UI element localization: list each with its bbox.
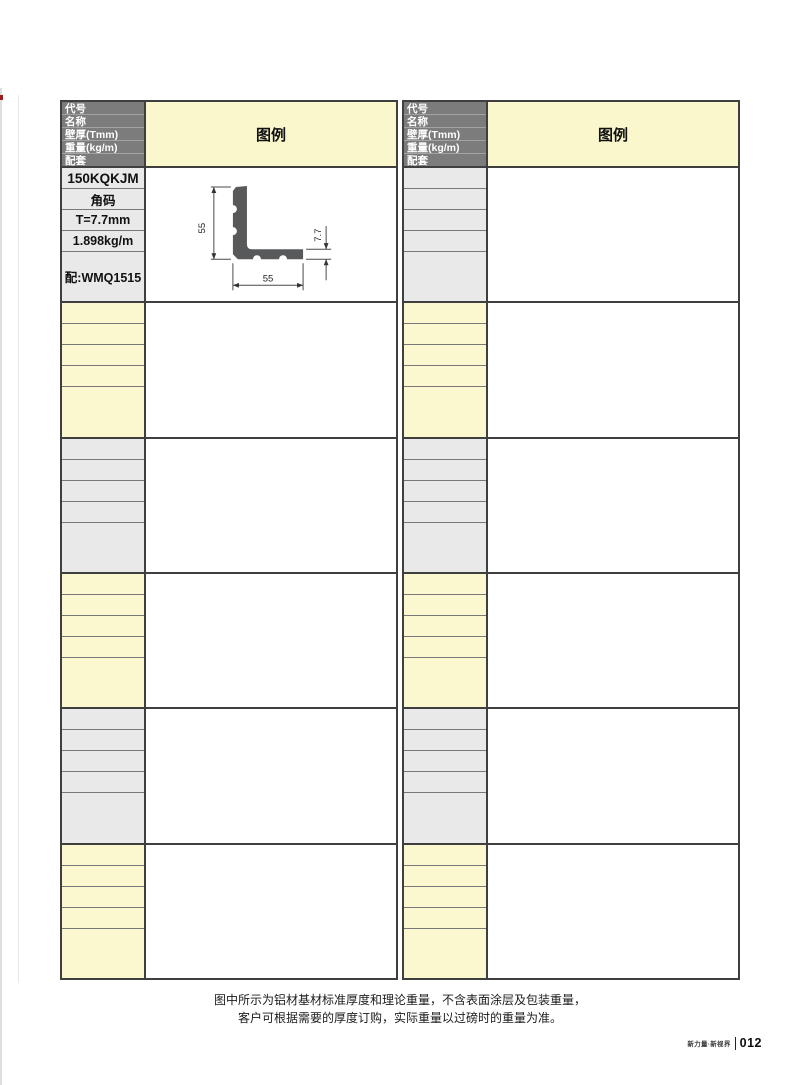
thickness-cell (62, 887, 144, 908)
spec-label-column (404, 439, 488, 572)
weight-cell (62, 772, 144, 793)
match-cell (404, 793, 486, 842)
weight-cell (404, 772, 486, 793)
code-cell (62, 303, 144, 324)
spec-block (62, 303, 396, 438)
spec-label-column (62, 845, 146, 978)
match-cell (62, 523, 144, 572)
spec-block (404, 845, 738, 978)
spec-block (404, 303, 738, 438)
spec-block (404, 574, 738, 709)
legend-cell (146, 303, 396, 436)
l-profile-shape (233, 186, 303, 259)
legend-cell (146, 574, 396, 707)
thickness-cell (404, 887, 486, 908)
name-cell (62, 595, 144, 616)
header-name-label: 名称 (404, 115, 486, 128)
spec-label-column (404, 168, 488, 301)
thickness-cell (404, 751, 486, 772)
match-cell (404, 387, 486, 436)
header-match-label: 配套 (62, 154, 144, 166)
spec-block (404, 709, 738, 844)
spec-label-column (62, 303, 146, 436)
spec-label-column (404, 303, 488, 436)
weight-cell: 1.898kg/m (62, 231, 144, 252)
legend-cell (488, 439, 738, 572)
spec-block (404, 168, 738, 303)
weight-cell (404, 502, 486, 523)
name-cell: 角码 (62, 189, 144, 210)
spec-label-column (62, 574, 146, 707)
spec-block (62, 574, 396, 709)
weight-cell (62, 908, 144, 929)
match-cell (404, 658, 486, 707)
thickness-cell (404, 345, 486, 366)
header-label-column: 代号 名称 壁厚(Tmm) 重量(kg/m) 配套 (404, 102, 488, 166)
thickness-cell (62, 616, 144, 637)
catalog-page: 代号 名称 壁厚(Tmm) 重量(kg/m) 配套 图例 150KQKJM 角码… (0, 0, 800, 1085)
scan-edge-artifact (0, 88, 2, 1085)
thickness-cell (62, 481, 144, 502)
left-spec-table: 代号 名称 壁厚(Tmm) 重量(kg/m) 配套 图例 150KQKJM 角码… (60, 100, 398, 980)
thickness-cell (404, 481, 486, 502)
spec-block (62, 439, 396, 574)
legend-cell (488, 574, 738, 707)
thickness-cell (404, 210, 486, 231)
code-cell (404, 709, 486, 730)
weight-cell (404, 637, 486, 658)
footer-note: 图中所示为铝材基材标准厚度和理论重量，不含表面涂层及包装重量， 客户可根据需要的… (0, 991, 800, 1027)
name-cell (404, 730, 486, 751)
name-cell (404, 866, 486, 887)
name-cell (404, 324, 486, 345)
match-cell (404, 252, 486, 301)
match-cell (62, 929, 144, 978)
code-cell (62, 845, 144, 866)
page-mark: 新力量·新视界 012 (687, 1036, 762, 1050)
table-header: 代号 名称 壁厚(Tmm) 重量(kg/m) 配套 图例 (62, 102, 396, 168)
spec-label-column (62, 709, 146, 842)
match-cell (62, 387, 144, 436)
spec-block (62, 709, 396, 844)
header-label-column: 代号 名称 壁厚(Tmm) 重量(kg/m) 配套 (62, 102, 146, 166)
match-cell (404, 523, 486, 572)
legend-cell (146, 845, 396, 978)
header-code-label: 代号 (62, 102, 144, 115)
name-cell (404, 189, 486, 210)
dim-width-label: 55 (263, 273, 274, 284)
name-cell (62, 324, 144, 345)
name-cell (62, 460, 144, 481)
weight-cell (404, 366, 486, 387)
code-cell (404, 845, 486, 866)
spec-block (404, 439, 738, 574)
code-cell (404, 439, 486, 460)
spec-label-column (404, 709, 488, 842)
right-spec-table: 代号 名称 壁厚(Tmm) 重量(kg/m) 配套 图例 (402, 100, 740, 980)
header-thickness-label: 壁厚(Tmm) (404, 128, 486, 141)
weight-cell (404, 231, 486, 252)
header-name-label: 名称 (62, 115, 144, 128)
spec-label-column: 150KQKJM 角码 T=7.7mm 1.898kg/m 配:WMQ1515 (62, 168, 146, 301)
spec-label-column (404, 845, 488, 978)
footer-note-line2: 客户可根据需要的厚度订购，实际重量以过磅时的重量为准。 (0, 1009, 800, 1027)
match-cell (62, 793, 144, 842)
thickness-cell (404, 616, 486, 637)
weight-cell (62, 366, 144, 387)
header-weight-label: 重量(kg/m) (404, 141, 486, 154)
angle-profile-drawing: 55 55 7.7 (146, 168, 396, 301)
legend-cell (488, 303, 738, 436)
spec-label-column (404, 574, 488, 707)
thickness-cell: T=7.7mm (62, 210, 144, 231)
page-mark-divider (735, 1037, 736, 1050)
weight-cell (62, 637, 144, 658)
legend-cell (488, 845, 738, 978)
code-cell (404, 168, 486, 189)
name-cell (404, 460, 486, 481)
header-code-label: 代号 (404, 102, 486, 115)
spec-block (62, 845, 396, 978)
spec-block: 150KQKJM 角码 T=7.7mm 1.898kg/m 配:WMQ1515 … (62, 168, 396, 303)
legend-header: 图例 (488, 102, 738, 166)
brand-slogan: 新力量·新视界 (687, 1038, 730, 1048)
match-cell (404, 929, 486, 978)
header-weight-label: 重量(kg/m) (62, 141, 144, 154)
footer-note-line1: 图中所示为铝材基材标准厚度和理论重量，不含表面涂层及包装重量， (0, 991, 800, 1009)
legend-cell (146, 439, 396, 572)
name-cell (404, 595, 486, 616)
header-match-label: 配套 (404, 154, 486, 166)
code-cell (404, 574, 486, 595)
code-cell: 150KQKJM (62, 168, 144, 189)
code-cell (62, 439, 144, 460)
thickness-cell (62, 345, 144, 366)
match-cell (62, 658, 144, 707)
dim-thickness-label: 7.7 (313, 229, 324, 242)
legend-cell (488, 168, 738, 301)
legend-cell (146, 709, 396, 842)
weight-cell (62, 502, 144, 523)
name-cell (62, 730, 144, 751)
code-cell (62, 574, 144, 595)
header-thickness-label: 壁厚(Tmm) (62, 128, 144, 141)
legend-cell: 55 55 7.7 (146, 168, 396, 301)
dim-height-label: 55 (197, 223, 208, 234)
legend-cell (488, 709, 738, 842)
code-cell (404, 303, 486, 324)
page-number: 012 (740, 1036, 762, 1050)
legend-header: 图例 (146, 102, 396, 166)
weight-cell (404, 908, 486, 929)
spec-label-column (62, 439, 146, 572)
match-cell: 配:WMQ1515 (62, 252, 144, 301)
scan-dot-artifact (0, 95, 3, 100)
table-header: 代号 名称 壁厚(Tmm) 重量(kg/m) 配套 图例 (404, 102, 738, 168)
code-cell (62, 709, 144, 730)
scan-line-artifact (18, 95, 19, 983)
thickness-cell (62, 751, 144, 772)
name-cell (62, 866, 144, 887)
